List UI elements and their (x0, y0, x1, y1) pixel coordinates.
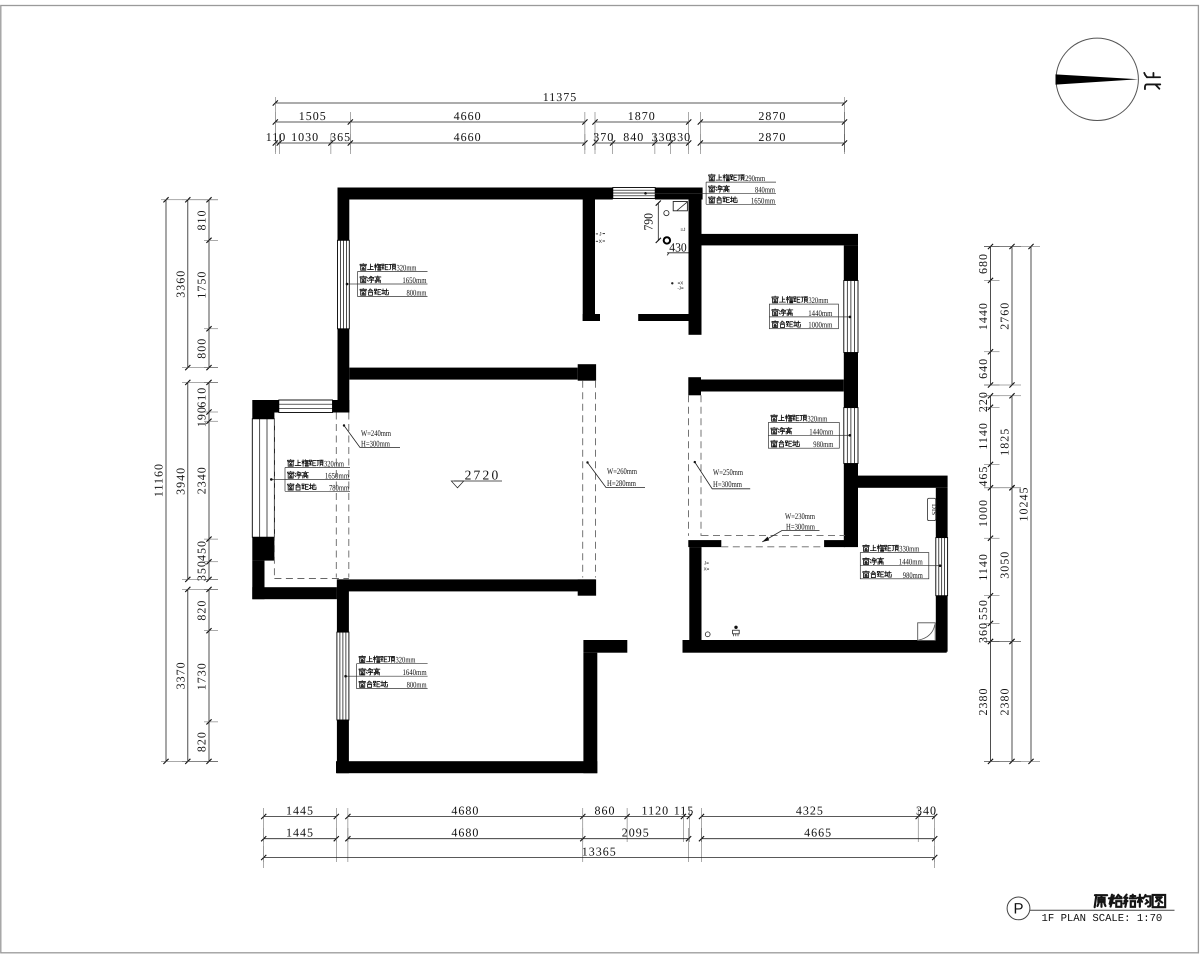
svg-text:1440mm: 1440mm (809, 426, 833, 436)
svg-text:J≡: J≡ (704, 561, 709, 566)
svg-text:1140: 1140 (976, 422, 990, 450)
svg-text:430: 430 (669, 241, 687, 255)
svg-text:H=280mm: H=280mm (607, 478, 636, 488)
svg-text:840: 840 (623, 130, 644, 144)
svg-text:2870: 2870 (758, 109, 786, 123)
svg-text:840mm: 840mm (755, 184, 775, 194)
svg-text:W=240mm: W=240mm (361, 428, 391, 438)
svg-text:1750: 1750 (195, 271, 209, 299)
svg-text:800: 800 (195, 338, 209, 359)
svg-text:1440: 1440 (976, 302, 990, 330)
svg-text:810: 810 (195, 210, 209, 231)
svg-text:H=300mm: H=300mm (786, 522, 815, 532)
svg-text:320mm: 320mm (808, 295, 828, 305)
svg-text:W=230mm: W=230mm (785, 511, 815, 521)
svg-text:13365: 13365 (582, 845, 617, 859)
svg-text:11375: 11375 (543, 90, 578, 104)
svg-text:1505: 1505 (299, 109, 327, 123)
svg-text:-J≡: -J≡ (677, 285, 684, 290)
svg-text:320mm: 320mm (397, 263, 417, 273)
svg-text:1000mm: 1000mm (808, 320, 832, 330)
svg-text:4660: 4660 (454, 130, 482, 144)
svg-text:340: 340 (916, 804, 937, 818)
svg-text:1650mm: 1650mm (402, 275, 426, 285)
svg-text:450: 450 (195, 540, 209, 561)
svg-text:320mm: 320mm (396, 655, 416, 665)
svg-text:610: 610 (195, 387, 209, 408)
svg-text:1650mm: 1650mm (751, 195, 775, 205)
svg-text:350: 350 (195, 560, 209, 581)
svg-text:11160: 11160 (152, 463, 166, 497)
svg-text:4680: 4680 (451, 826, 479, 840)
svg-text:790: 790 (642, 213, 656, 231)
svg-text:780mm: 780mm (329, 482, 349, 492)
svg-text:2760: 2760 (998, 302, 1012, 330)
svg-text:1140: 1140 (976, 553, 990, 581)
svg-text:1120: 1120 (642, 804, 670, 818)
svg-text:1445: 1445 (286, 804, 314, 818)
svg-text:3050: 3050 (998, 551, 1012, 579)
svg-text:2870: 2870 (758, 130, 786, 144)
svg-text:3940: 3940 (173, 467, 187, 495)
svg-text:465: 465 (976, 466, 990, 487)
svg-text:290mm: 290mm (745, 173, 765, 183)
svg-text:4660: 4660 (454, 109, 482, 123)
svg-text:1030: 1030 (291, 130, 319, 144)
svg-text:370: 370 (593, 130, 614, 144)
svg-text:1640mm: 1640mm (403, 667, 427, 677)
svg-text:1000: 1000 (976, 499, 990, 527)
svg-text:W=250mm: W=250mm (713, 467, 743, 477)
svg-text:320mm: 320mm (807, 414, 827, 424)
svg-text:320mm: 320mm (324, 459, 344, 469)
svg-text:360: 360 (976, 622, 990, 643)
svg-text:220: 220 (976, 391, 990, 412)
svg-text:4665: 4665 (804, 826, 832, 840)
svg-text:1440mm: 1440mm (899, 557, 923, 567)
svg-text:860: 860 (595, 804, 616, 818)
svg-text:10245: 10245 (1017, 487, 1031, 522)
svg-text:365: 365 (330, 130, 351, 144)
svg-text:≡J: ≡J (681, 227, 686, 232)
svg-text:P: P (1013, 901, 1023, 918)
svg-text:2380: 2380 (976, 688, 990, 716)
svg-text:3360: 3360 (173, 270, 187, 298)
svg-text:330mm: 330mm (899, 544, 919, 554)
svg-text:2380: 2380 (998, 688, 1012, 716)
svg-text:1445: 1445 (286, 826, 314, 840)
svg-text:1440mm: 1440mm (808, 308, 832, 318)
svg-text:1730: 1730 (195, 662, 209, 690)
svg-text:2340: 2340 (195, 466, 209, 494)
svg-text:2095: 2095 (622, 826, 650, 840)
svg-text:550: 550 (976, 599, 990, 620)
svg-text:640: 640 (976, 358, 990, 379)
svg-text:1870: 1870 (628, 109, 656, 123)
svg-text:DIS: DIS (930, 504, 937, 515)
svg-text:4325: 4325 (796, 804, 824, 818)
svg-text:115: 115 (674, 804, 695, 818)
svg-text:1650mm: 1650mm (325, 470, 349, 480)
svg-text:1F PLAN SCALE: 1:70: 1F PLAN SCALE: 1:70 (1042, 913, 1163, 925)
svg-text:820: 820 (195, 731, 209, 752)
svg-text:680: 680 (976, 253, 990, 274)
svg-text:980mm: 980mm (903, 570, 923, 580)
svg-text:H=300mm: H=300mm (713, 479, 742, 489)
svg-text:800mm: 800mm (407, 680, 427, 690)
svg-text:W=260mm: W=260mm (607, 466, 637, 476)
svg-text:H=300mm: H=300mm (361, 438, 390, 448)
svg-text:980mm: 980mm (813, 439, 833, 449)
svg-text:820: 820 (195, 600, 209, 621)
svg-text:X≡: X≡ (704, 566, 710, 571)
svg-text:4680: 4680 (451, 804, 479, 818)
svg-text:800mm: 800mm (407, 288, 427, 298)
svg-text:3370: 3370 (173, 661, 187, 689)
svg-text:1825: 1825 (998, 428, 1012, 456)
svg-text:110: 110 (266, 130, 287, 144)
svg-text:190: 190 (195, 406, 209, 427)
svg-text:330: 330 (670, 130, 691, 144)
svg-text:2720: 2720 (465, 468, 501, 483)
